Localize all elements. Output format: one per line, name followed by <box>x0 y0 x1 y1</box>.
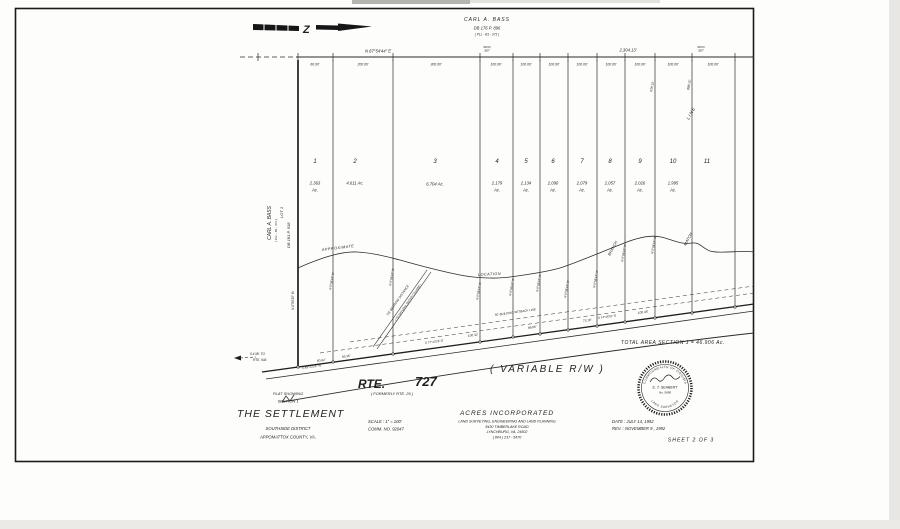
north-arrow-icon: Z <box>302 24 311 36</box>
lot-number: 7 <box>580 159 584 165</box>
lot-number: 2 <box>352 159 357 165</box>
segment-distance: 100.00' <box>520 63 531 67</box>
owner-plat-ref: ( PLL - B1 - 371 ) <box>475 33 499 37</box>
firm-block: ACRES INCORPORATED LAND SURVEYING, ENGIN… <box>458 410 555 440</box>
lot-acreage-unit: Ac. <box>606 188 613 193</box>
mileage-note: 0.4 MI. TO <box>250 352 266 356</box>
lot-acreage: 2.057 <box>604 181 616 186</box>
lot-7: 7 2.079 Ac. <box>576 159 588 193</box>
lot-4: 4 2.179 Ac. <box>491 159 503 193</box>
segment-distance: 100.00' <box>605 63 616 67</box>
lot-acreage-unit: Ac. <box>578 188 585 193</box>
owner-plat-ref: ( PLL - B1 - 371 ) <box>274 219 278 242</box>
scanned-plat-document: Z CARL A. BASS DB 176 P. 896 ( PLL - B1 … <box>0 0 900 529</box>
segment-distance: 100.00' <box>667 63 678 67</box>
owner-deed-ref: DB 181 P. 518 <box>286 222 291 248</box>
firm-phone: ( 804 ) 237 - 5470 <box>493 436 522 440</box>
road-distance: 93.35' <box>342 354 351 359</box>
boundary-bearing: N 0°58'15" W <box>291 290 295 310</box>
road-distance: 99.85' <box>528 325 537 330</box>
segment-distance: 100.00' <box>707 63 718 67</box>
segment-distance: 100.00' <box>576 63 587 67</box>
lot-acreage: 2.134 <box>520 181 532 186</box>
svg-text:COMMONWEALTH OF VIRGINIA: COMMONWEALTH OF VIRGINIA <box>642 365 687 385</box>
seal-top-arc-text: COMMONWEALTH OF VIRGINIA <box>642 365 687 385</box>
county-label: APPOMATTOX COUNTY, VA. <box>259 435 316 440</box>
road-bearing: S 89°43'26" W <box>302 363 323 370</box>
lot-acreage-unit: Ac. <box>636 188 643 193</box>
setback-label: 50' BUILDING SETBACK LINE <box>495 307 537 317</box>
tie-line: TIE BEARING DISTANCE ( TO NATURAL WATER … <box>373 270 431 349</box>
lot-2: 2 4.611 Ac. <box>346 159 363 186</box>
firm-city: LYNCHBURG, VA. 24502 <box>487 430 528 434</box>
road-distance: 60.62' <box>317 358 326 363</box>
branch-label: LOCATION <box>478 272 501 277</box>
scale-note: SCALE : 1" = 100' <box>368 419 402 424</box>
segment-distance: 300.00' <box>430 63 441 67</box>
lot-line-bearing: N 0°58'15" W <box>475 281 482 300</box>
lot-number: 4 <box>495 159 499 165</box>
lot-number: 10 <box>670 159 677 165</box>
mileage-note: RTE. 644 <box>253 358 267 362</box>
lot-acreage: 2.363 <box>309 181 321 186</box>
lot-acreage-unit: Ac. <box>669 188 676 193</box>
lot-line-bearing: N 0°58'15" W <box>535 273 542 292</box>
route-formerly-label: ( FORMERLY RTE. 26 ) <box>371 391 414 396</box>
road-distance: 100.32' <box>468 333 479 338</box>
signature <box>650 375 680 382</box>
lot-number: 11 <box>704 159 710 165</box>
lot-8: 8 2.057 Ac. <box>604 159 616 193</box>
lot-ref: LOT 1 <box>279 207 284 218</box>
district-label: SOUTHSIDE DISTRICT <box>266 426 311 431</box>
branch-label: BRANCH <box>607 240 618 256</box>
lot-line-bearing: N 0°58'15" W <box>620 243 627 262</box>
segment-distance: 100.00' <box>634 63 645 67</box>
lot-11: 11 <box>704 159 710 165</box>
north-boundary-dimension-line <box>240 53 754 61</box>
lot-3: 3 6.704 Ac. <box>426 159 444 187</box>
lot-acreage-unit: Ac. <box>311 188 318 193</box>
firm-services: LAND SURVEYING, ENGINEERING AND LAND PLA… <box>458 420 555 424</box>
total-area-note: TOTAL AREA SECTION 1 = 46.906 Ac. <box>621 340 725 346</box>
road-distance: 100.45' <box>638 310 649 315</box>
route-number: 727 <box>415 374 437 389</box>
owner-name: CARL A. BASS <box>267 205 273 240</box>
lot-line-bearing: N 0°58'15" W <box>592 269 599 288</box>
boundary-bearing: N 87°54'44" E <box>365 49 391 54</box>
lot-acreage-unit: Ac. <box>549 188 556 193</box>
title-block: PLAT SHOWING SECTION 1 THE SETTLEMENT SO… <box>237 391 405 440</box>
lot-acreage-unit: Ac. <box>493 188 500 193</box>
lot-5: 5 2.134 Ac. <box>520 159 532 193</box>
surveyor-name: E. T. SEABERT <box>653 386 679 390</box>
lot-labels: 1 2.363 Ac. 2 4.611 Ac. 3 6.704 Ac. 4 2.… <box>309 159 710 193</box>
lot-line-bearing: N 0°58'15" W <box>563 279 570 298</box>
lot-number: 1 <box>313 159 316 165</box>
plat-revision-date: REV. : NOVEMBER 9 , 1992 <box>612 426 666 431</box>
boundary-total-distance: 2,304.13' <box>618 48 636 53</box>
iron-set-label: SET <box>698 49 704 53</box>
route-label: RTE. <box>358 377 385 391</box>
lot-line-bearing: N 0°58'15" W <box>508 277 515 296</box>
lot-lines <box>298 60 735 367</box>
lot-number: 5 <box>524 159 528 165</box>
lot-acreage: 1.995 <box>668 181 679 186</box>
match-line-label: LINE <box>685 106 696 121</box>
segment-distance: 60.00' <box>310 63 319 67</box>
lot-number: 9 <box>638 159 642 165</box>
lot-1: 1 2.363 Ac. <box>309 159 321 193</box>
lot-6: 6 2.090 Ac. <box>547 159 559 193</box>
lot-acreage-unit: Ac. <box>522 188 529 193</box>
segment-distance: 100.00' <box>548 63 559 67</box>
lot-line-bearing: N 0°58'15" W <box>650 235 657 254</box>
svg-text:LAND SURVEYOR: LAND SURVEYOR <box>650 399 680 409</box>
lot-9: 9 2.026 Ac. <box>634 159 646 193</box>
segment-distance: 100.00' <box>490 63 501 67</box>
lot-acreage: 2.179 <box>491 181 503 186</box>
road-distance: 73.18' <box>583 318 592 323</box>
iron-set-label: SET <box>484 49 490 53</box>
subdivision-title: THE SETTLEMENT <box>237 408 345 420</box>
lot-number: 6 <box>551 159 555 165</box>
lot-number: 3 <box>433 159 437 165</box>
firm-address: 8430 TIMBERLAKE ROAD <box>485 425 529 429</box>
scan-edge-artifacts <box>0 0 900 529</box>
plat-drawing-canvas: Z CARL A. BASS DB 176 P. 896 ( PLL - B1 … <box>0 0 900 529</box>
surveyor-seal: COMMONWEALTH OF VIRGINIA LAND SURVEYOR E… <box>639 362 692 415</box>
variable-rw-label: ( VARIABLE R/W ) <box>490 364 605 375</box>
owner-name: CARL A. BASS <box>464 17 510 23</box>
lot-acreage: 4.611 Ac. <box>346 181 363 186</box>
plat-date: DATE : JULY 14, 1992 <box>612 419 654 424</box>
adjoining-owner-top: CARL A. BASS DB 176 P. 896 ( PLL - B1 - … <box>464 17 510 37</box>
date-block: DATE : JULY 14, 1992 REV. : NOVEMBER 9 ,… <box>612 419 666 431</box>
lot-number: 8 <box>608 159 612 165</box>
section-label: SECTION 1 <box>277 399 298 404</box>
adjoining-owner-left: LOT 1 CARL A. BASS ( PLL - B1 - 371 ) DB… <box>267 205 295 310</box>
arrow-graphic <box>338 24 372 32</box>
lot-line-length: 678.15' <box>649 81 655 92</box>
seal-bottom-arc-text: LAND SURVEYOR <box>650 399 680 409</box>
sheet-number: SHEET 2 OF 3 <box>668 438 715 444</box>
lot-acreage: 2.090 <box>547 181 559 186</box>
lot-acreage: 2.079 <box>576 181 588 186</box>
direction-arrow-icon <box>234 356 241 361</box>
commission-number: COMM. NO. 92047 <box>368 427 405 432</box>
lot-acreage: 2.026 <box>634 181 646 186</box>
scale-bar-graphic-2 <box>316 25 338 30</box>
firm-name: ACRES INCORPORATED <box>459 410 554 417</box>
lot-acreage: 6.704 Ac. <box>426 182 444 187</box>
lot-line-bearing: N 0°58'15" W <box>328 271 335 290</box>
surveyor-license-number: No. 5695 <box>659 391 672 395</box>
north-arrow-and-scale-graphic: Z <box>253 24 372 37</box>
road-bearing: S 77°43'26" E <box>425 338 445 345</box>
dimension-labels: N 87°54'44" E 2,304.13' IRON SET IRON SE… <box>310 45 718 67</box>
owner-deed-ref: DB 176 P. 896 <box>474 26 501 31</box>
lot-line-bearing: N 0°58'15" W <box>388 267 395 286</box>
branch-label: APPROXIMATE <box>321 244 355 252</box>
segment-distance: 200.00' <box>356 63 368 67</box>
plat-showing-label: PLAT SHOWING <box>273 391 303 396</box>
lot-line-length: 888.15' <box>686 79 692 90</box>
lot-10: 10 1.995 Ac. <box>668 159 679 193</box>
